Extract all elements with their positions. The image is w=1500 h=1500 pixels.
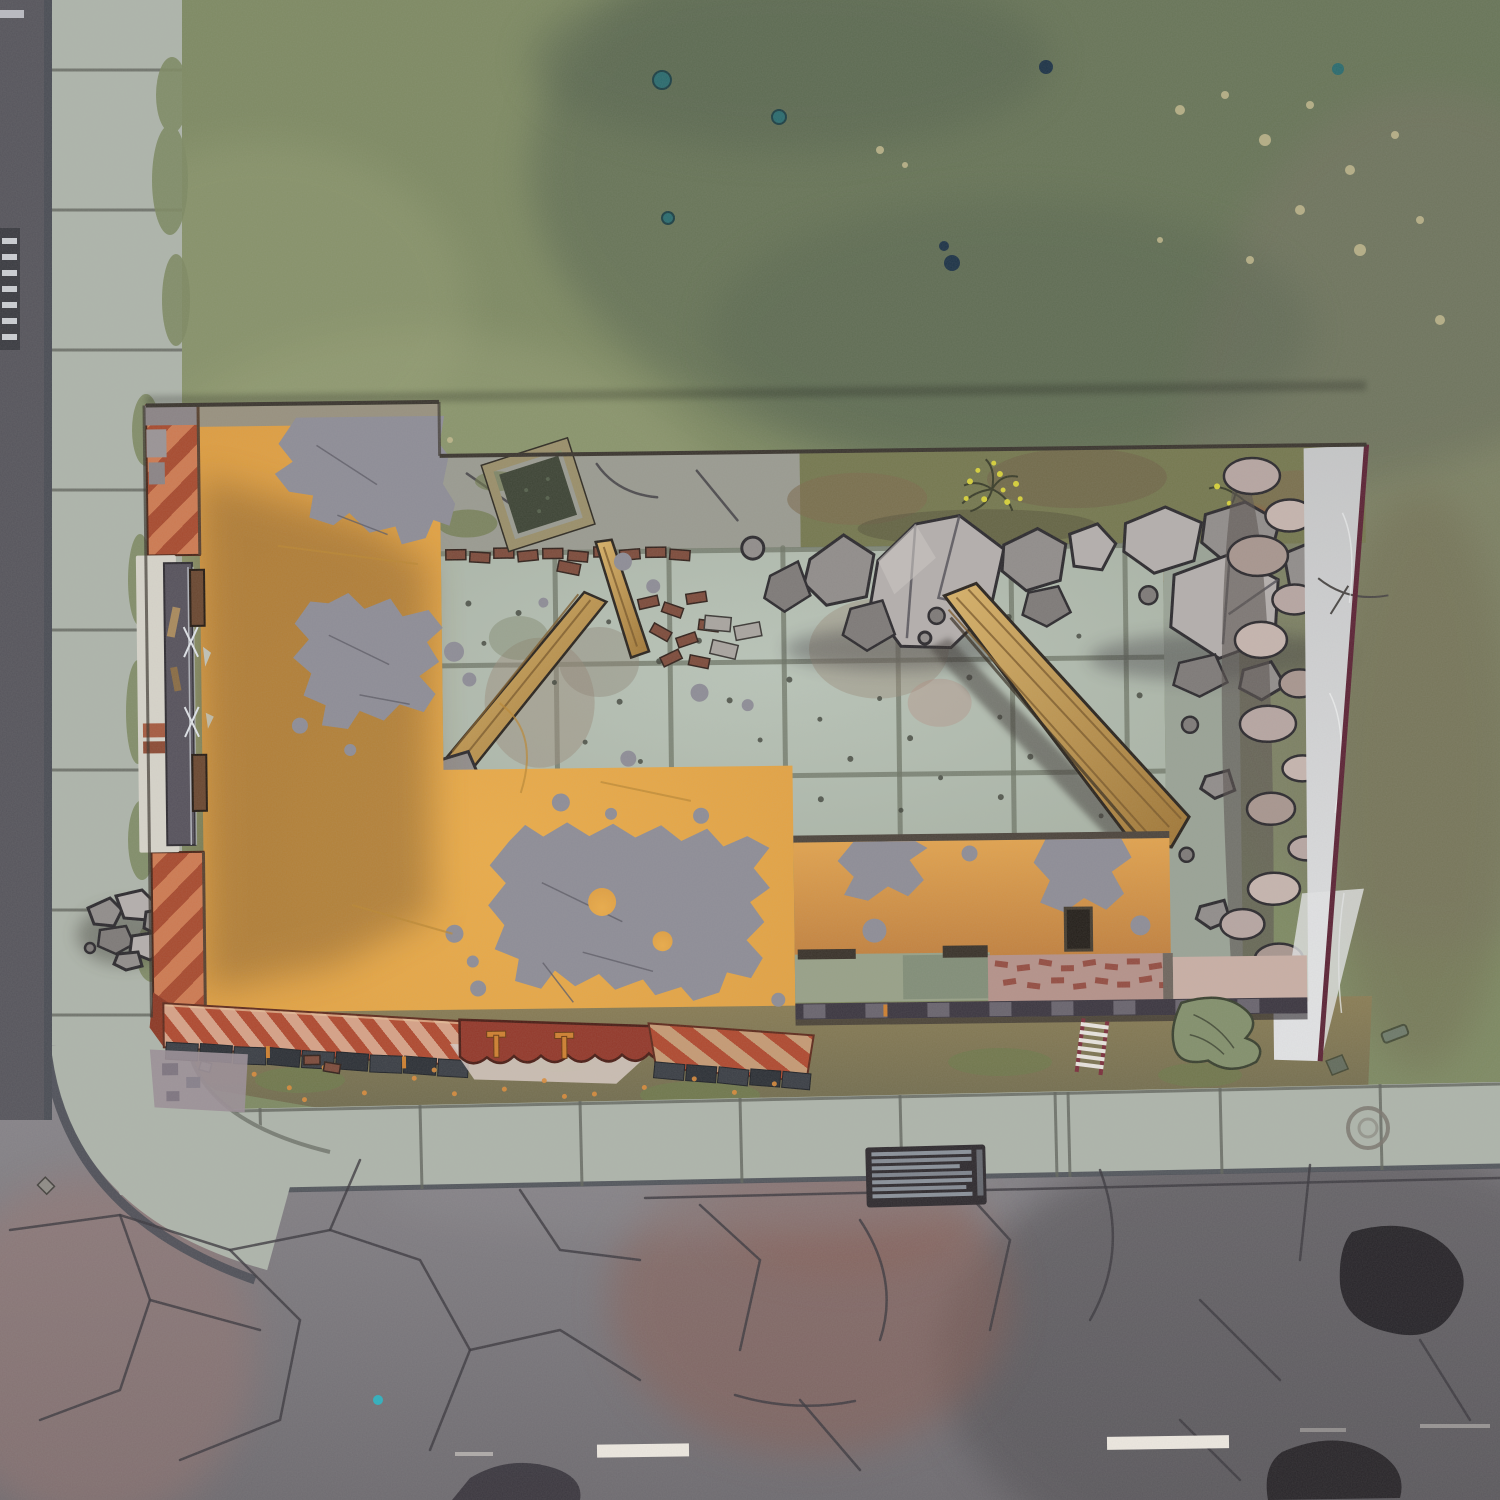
battle-map bbox=[0, 0, 1500, 1500]
grain-overlay bbox=[0, 0, 1500, 1500]
